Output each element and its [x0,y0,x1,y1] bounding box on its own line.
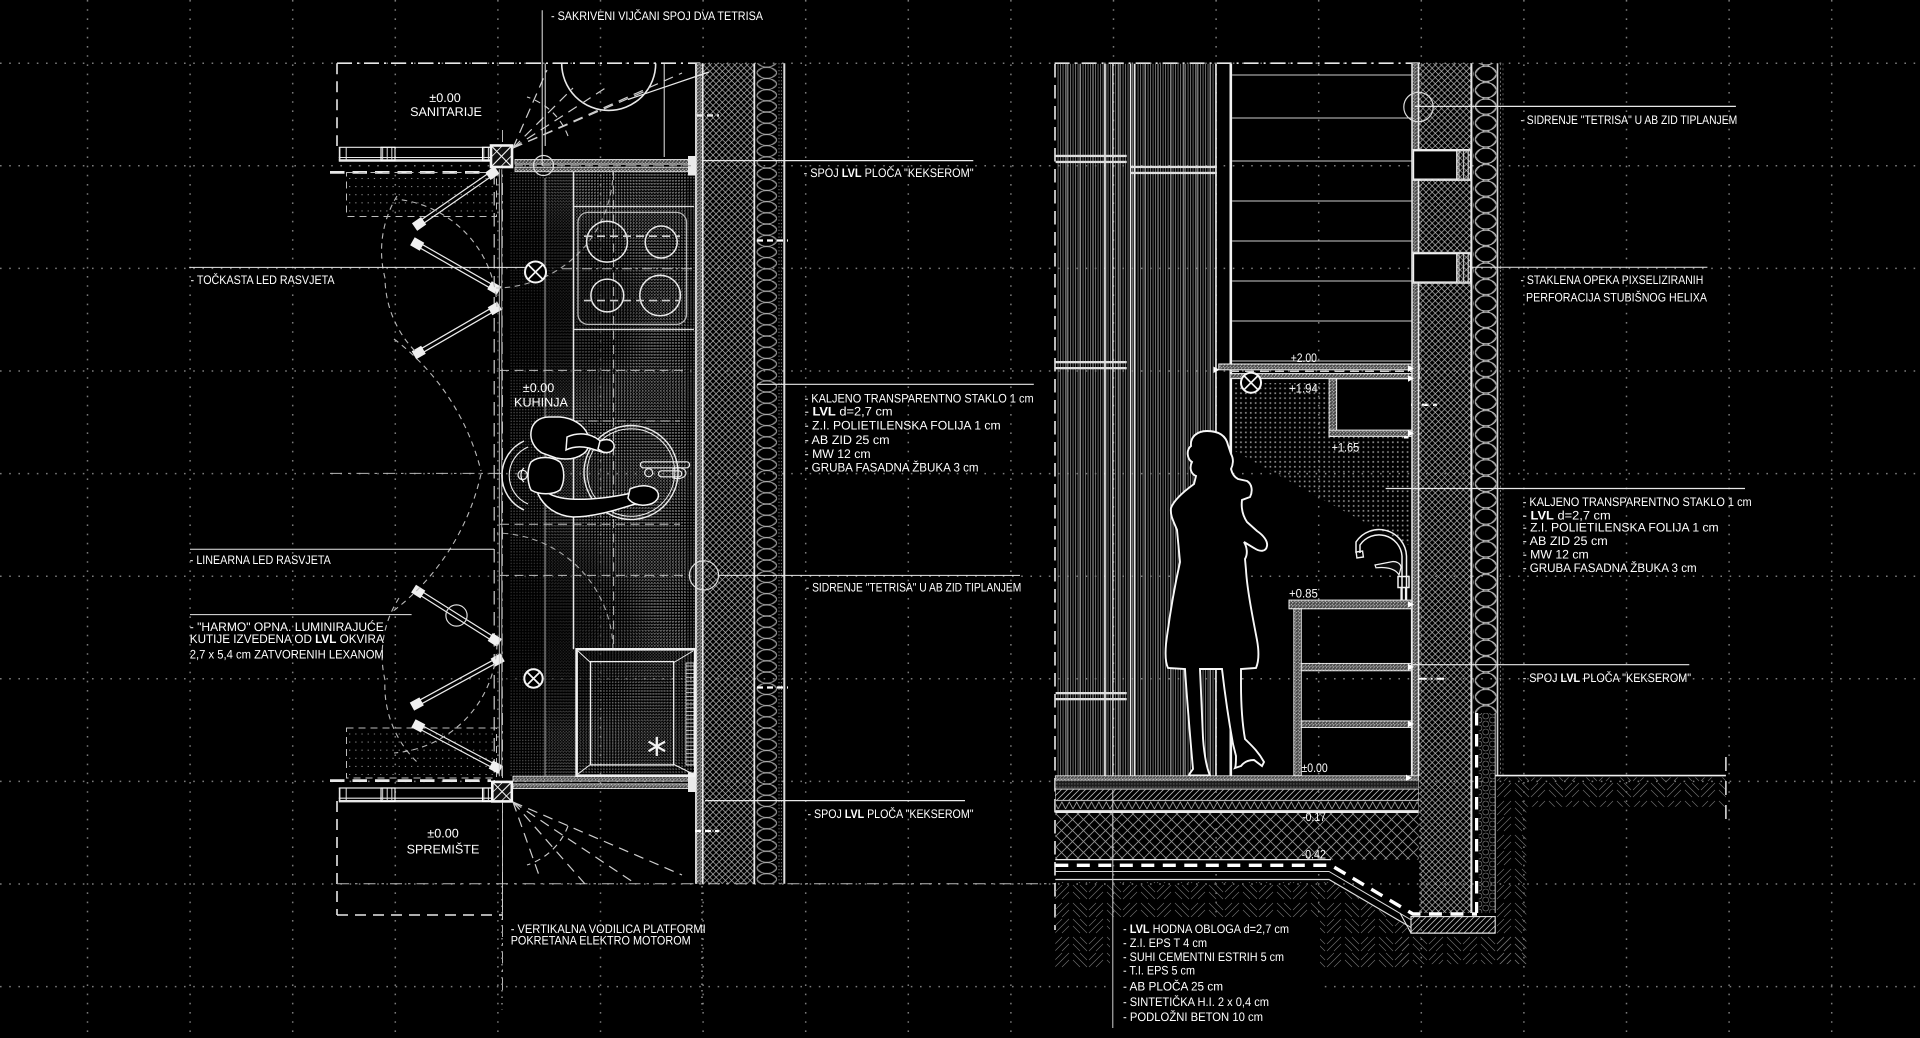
svg-text:SPREMIŠTE: SPREMIŠTE [407,842,480,856]
svg-text:- LVL HODNA OBLOGA d=2,7 cm: - LVL HODNA OBLOGA d=2,7 cm [1123,922,1289,936]
svg-text:- SUHI CEMENTNI ESTRIH 5 cm: - SUHI CEMENTNI ESTRIH 5 cm [1123,950,1284,964]
svg-text:- AB ZID 25 cm: - AB ZID 25 cm [805,433,890,447]
svg-text:PERFORACIJA STUBIŠNOG HELIXA: PERFORACIJA STUBIŠNOG HELIXA [1526,290,1708,304]
svg-text:±0.00: ±0.00 [523,381,554,395]
svg-text:-0.17: -0.17 [1302,810,1326,824]
svg-text:+0.85: +0.85 [1289,587,1318,601]
svg-text:POKRETANA ELEKTRO MOTOROM: POKRETANA ELEKTRO MOTOROM [511,934,691,948]
svg-text:+1.94: +1.94 [1289,382,1318,396]
svg-text:- LVL d=2,7 cm: - LVL d=2,7 cm [805,405,893,419]
svg-text:KUTIJE IZVEDENA OD LVL OKV: KUTIJE IZVEDENA OD LVL OKVIRA [190,632,385,646]
svg-text:-0.42: -0.42 [1302,847,1326,861]
svg-text:- Z.I. EPS T 4 cm: - Z.I. EPS T 4 cm [1123,936,1207,950]
svg-text:+1.65: +1.65 [1332,441,1360,455]
svg-text:- SPOJ LVL PLOČA "KEKSEROM": - SPOJ LVL PLOČA "KEKSEROM" [808,807,974,821]
svg-text:- TOČKASTA LED RASVJETA: - TOČKASTA LED RASVJETA [191,273,336,287]
svg-text:KUHINJA: KUHINJA [514,395,568,409]
svg-text:- AB ZID 25 cm: - AB ZID 25 cm [1523,534,1608,548]
svg-text:±0.00: ±0.00 [429,91,460,105]
svg-text:- T.I. EPS 5 cm: - T.I. EPS 5 cm [1123,964,1195,978]
svg-text:- LINEARNA LED RASVJETA: - LINEARNA LED RASVJETA [190,553,332,567]
svg-text:±0.00: ±0.00 [427,826,458,840]
svg-text:- SPOJ LVL PLOČA "KEKSEROM": - SPOJ LVL PLOČA "KEKSEROM" [1523,671,1691,685]
svg-text:- SIDRENJE "TETRISA" U AB ZID: - SIDRENJE "TETRISA" U AB ZID TIPLANJEM [806,581,1022,595]
svg-text:- MW 12 cm: - MW 12 cm [1523,547,1589,561]
svg-text:+2.00: +2.00 [1291,351,1317,365]
svg-text:SANITARIJE: SANITARIJE [410,105,482,119]
svg-text:- SAKRIVENI VIJČANI SPOJ DVA T: - SAKRIVENI VIJČANI SPOJ DVA TETRISA [551,9,764,23]
svg-text:- STAKLENA OPEKA PIXSELIZIRANI: - STAKLENA OPEKA PIXSELIZIRANIH [1521,273,1704,287]
svg-text:- Z.I. POLIETILENSKA FOLIJA 1: - Z.I. POLIETILENSKA FOLIJA 1 cm [1523,520,1719,534]
svg-text:- GRUBA FASADNA ŽBUKA 3 cm: - GRUBA FASADNA ŽBUKA 3 cm [1523,561,1697,575]
svg-text:- KALJENO TRANSPARENTNO STAKLO: - KALJENO TRANSPARENTNO STAKLO 1 cm [1523,495,1752,509]
svg-text:- MW 12 cm: - MW 12 cm [805,447,871,461]
svg-text:- KALJENO TRANSPARENTNO STAKLO: - KALJENO TRANSPARENTNO STAKLO 1 cm [805,392,1034,406]
svg-text:- SINTETIČKA H.I. 2 x 0,4 cm: - SINTETIČKA H.I. 2 x 0,4 cm [1123,995,1269,1009]
svg-text:- GRUBA FASADNA ŽBUKA 3 cm: - GRUBA FASADNA ŽBUKA 3 cm [805,461,979,475]
svg-text:- PODLOŽNI BETON 10 cm: - PODLOŽNI BETON 10 cm [1123,1010,1263,1024]
svg-text:- SIDRENJE "TETRISA" U AB ZID: - SIDRENJE "TETRISA" U AB ZID TIPLANJEM [1521,113,1738,127]
svg-text:- AB PLOČA 25 cm: - AB PLOČA 25 cm [1123,979,1223,993]
svg-text:- SPOJ LVL PLOČA "KEKSEROM": - SPOJ LVL PLOČA "KEKSEROM" [804,166,974,180]
svg-text:2,7 x 5,4 cm ZATVORENIH LEXANO: 2,7 x 5,4 cm ZATVORENIH LEXANOM [190,647,384,661]
svg-text:- Z.I. POLIETILENSKA FOLIJA 1: - Z.I. POLIETILENSKA FOLIJA 1 cm [805,419,1001,433]
svg-text:±0.00: ±0.00 [1302,761,1328,775]
